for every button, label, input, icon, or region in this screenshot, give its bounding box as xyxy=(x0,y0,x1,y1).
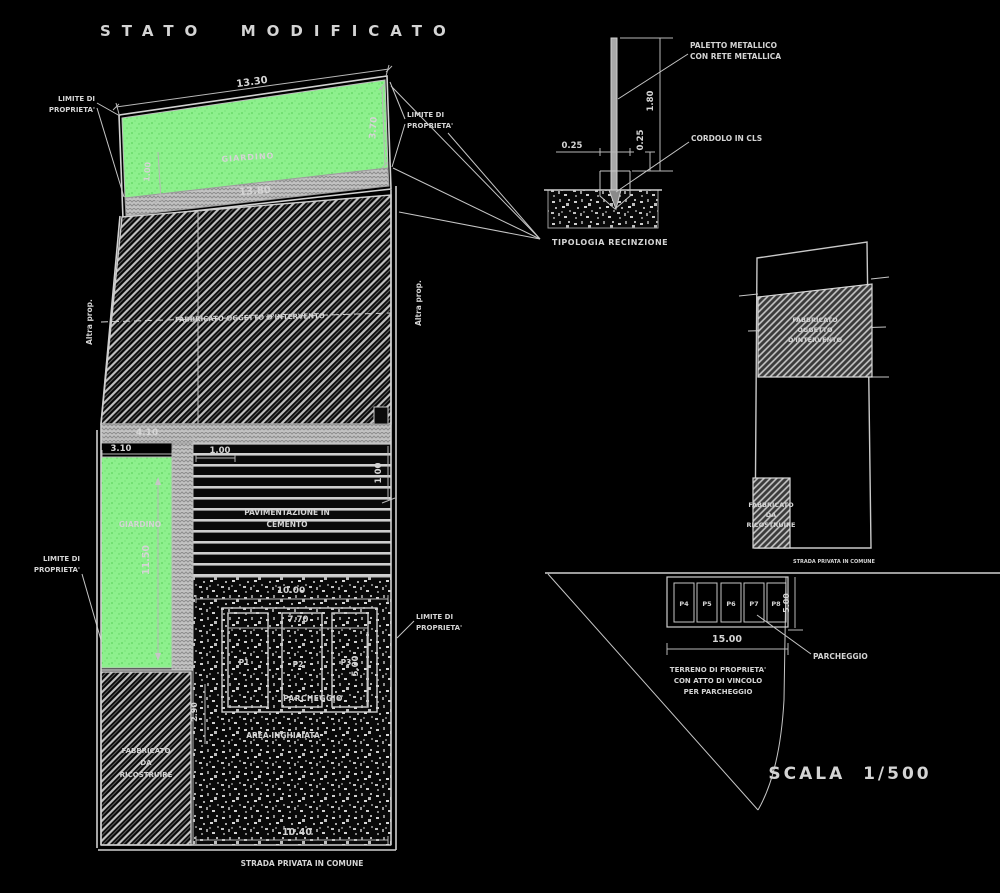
altra-prop-right: Altra prop. xyxy=(414,280,423,326)
ground-section xyxy=(548,190,658,228)
limite-mid-left-1: LIMITE DI xyxy=(43,555,80,563)
terreno-label-1: TERRENO DI PROPRIETA' xyxy=(670,666,766,674)
building-block xyxy=(101,195,391,424)
stall-p3-label: P3 xyxy=(341,658,352,667)
rebuild-label-3: RICOSTRUIRE xyxy=(120,771,173,779)
garden-mid-label: GIARDINO xyxy=(119,520,161,529)
rebuild-label-1: FABBRICATO xyxy=(122,747,171,755)
lot-rebuild-label-3: RICOSTRUIRE xyxy=(747,521,796,529)
dim-5-00-parking-text: 5.00 xyxy=(782,593,791,613)
road-small-label: STRADA PRIVATA IN COMUNE xyxy=(793,559,875,565)
dim-5-00-text: 5.00 xyxy=(351,655,361,676)
lot-building-label-1: FABBRICATO xyxy=(792,316,838,324)
limite-top-right-1: LIMITE DI xyxy=(407,111,444,119)
dim-1-00-garden-text: 1.00 xyxy=(142,161,152,182)
lot-rebuild-label-1: FABBRICATO xyxy=(748,501,794,509)
page-title: STATO MODIFICATO xyxy=(100,22,457,40)
limite-mid-right-2: PROPRIETA' xyxy=(416,624,462,632)
dim-10-40-text: 10.40 xyxy=(282,827,312,838)
rebuild-label-2: DA xyxy=(140,759,152,767)
garden-mid-area xyxy=(101,457,172,668)
terreno-label-2: CON ATTO DI VINCOLO xyxy=(674,677,762,685)
post-label-1: PALETTO METALLICO xyxy=(690,41,777,50)
parcheggio-label: PARCHEGGIO xyxy=(283,694,343,703)
stall-p4-label: P4 xyxy=(679,600,689,608)
dim-3-70-text: 3.70 xyxy=(368,116,380,139)
post-label-2: CON RETE METALLICA xyxy=(690,52,781,61)
altra-prop-left: Altra prop. xyxy=(85,299,94,345)
building-hatch-area xyxy=(101,195,391,424)
dim-1-80-text: 1.80 xyxy=(646,90,656,111)
fence-caption: TIPOLOGIA RECINZIONE xyxy=(552,238,668,247)
leader-limite-left xyxy=(82,574,101,640)
lot-building-label-3: D'INTERVENTO xyxy=(788,336,842,344)
paving-label-2: CEMENTO xyxy=(267,520,308,529)
paving-label-1: PAVIMENTAZIONE IN xyxy=(244,508,330,517)
dim-1-00-right-text: 1.00 xyxy=(374,462,384,483)
terreno-label-3: PER PARCHEGGIO xyxy=(684,688,753,696)
stall-p2-label: P2 xyxy=(293,660,304,669)
dim-10-00-text: 10.00 xyxy=(277,586,305,596)
dim-15-00-text: 15.00 xyxy=(712,634,742,645)
area-inghiaiata-label: AREA INGHIAIATA xyxy=(246,731,320,740)
dim-11-50-text: 11.50 xyxy=(141,545,152,575)
dim-4-10-text: 4.10 xyxy=(136,428,158,438)
stall-p6-label: P6 xyxy=(726,600,736,608)
walk-band-vertical xyxy=(172,443,193,670)
lot-rebuild-label-2: DA xyxy=(766,511,776,519)
dim-0-25-width-text: 0.25 xyxy=(562,141,583,151)
parking-parcheggio-label: PARCHEGGIO xyxy=(813,652,868,661)
pillar-rect xyxy=(374,407,388,424)
limite-mid-right-1: LIMITE DI xyxy=(416,613,453,621)
curb-label: CORDOLO IN CLS xyxy=(691,134,762,143)
dim-7-70-text: 7.70 xyxy=(288,615,309,625)
dim-0-25-curb-text: 0.25 xyxy=(636,129,646,150)
strada-privata-label: STRADA PRIVATA IN COMUNE xyxy=(241,859,364,868)
parcheggio-leader xyxy=(757,615,811,654)
dim-13-30-text: 13.30 xyxy=(236,75,269,90)
limite-top-left-1: LIMITE DI xyxy=(58,95,95,103)
stall-p1-label: P1 xyxy=(239,658,250,667)
dim-3-10-text: 3.10 xyxy=(111,444,132,454)
stall-p7-label: P7 xyxy=(749,600,758,608)
limite-top-left-2: PROPRIETA' xyxy=(49,106,95,114)
limite-mid-left-2: PROPRIETA' xyxy=(34,566,80,574)
drawing-canvas: STATO MODIFICATO GIARDINO 13.30 13.80 3.… xyxy=(0,0,1000,893)
dim-13-80-text: 13.80 xyxy=(239,185,271,198)
leader-limite-right xyxy=(397,621,414,638)
stall-p5-label: P5 xyxy=(702,600,712,608)
dim-1-00-band-text: 1.00 xyxy=(210,446,231,456)
fence-post xyxy=(611,38,617,190)
fence-detail xyxy=(544,38,689,228)
lot-building-label-2: OGGETTO xyxy=(797,326,833,334)
site-plan-drawing: STATO MODIFICATO GIARDINO 13.30 13.80 3.… xyxy=(0,0,1000,893)
scale-label: SCALA 1/500 xyxy=(768,764,931,784)
stall-p8-label: P8 xyxy=(771,600,781,608)
